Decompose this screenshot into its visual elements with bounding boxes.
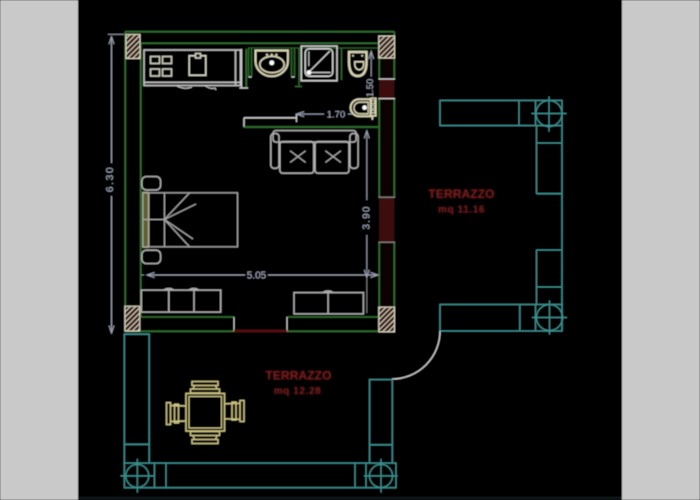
svg-text:3.90: 3.90 — [361, 205, 372, 229]
svg-text:1.50: 1.50 — [365, 79, 376, 98]
svg-text:1.70: 1.70 — [327, 109, 346, 120]
svg-text:5.05: 5.05 — [247, 271, 267, 282]
svg-text:TERRAZZO: TERRAZZO — [265, 369, 331, 383]
svg-text:6.30: 6.30 — [104, 166, 116, 192]
svg-text:mq 12.28: mq 12.28 — [274, 386, 322, 397]
svg-text:TERRAZZO: TERRAZZO — [428, 187, 494, 201]
svg-text:mq 11.16: mq 11.16 — [438, 205, 485, 216]
